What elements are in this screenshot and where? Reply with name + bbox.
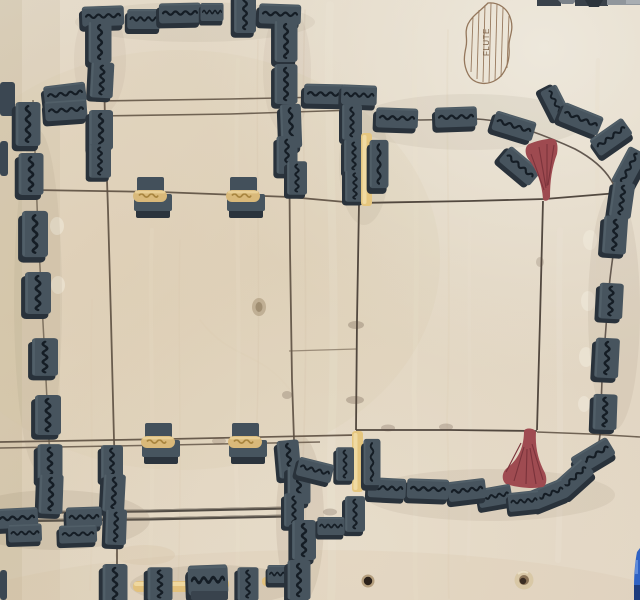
svg-text:FLUTE: FLUTE — [482, 28, 491, 56]
